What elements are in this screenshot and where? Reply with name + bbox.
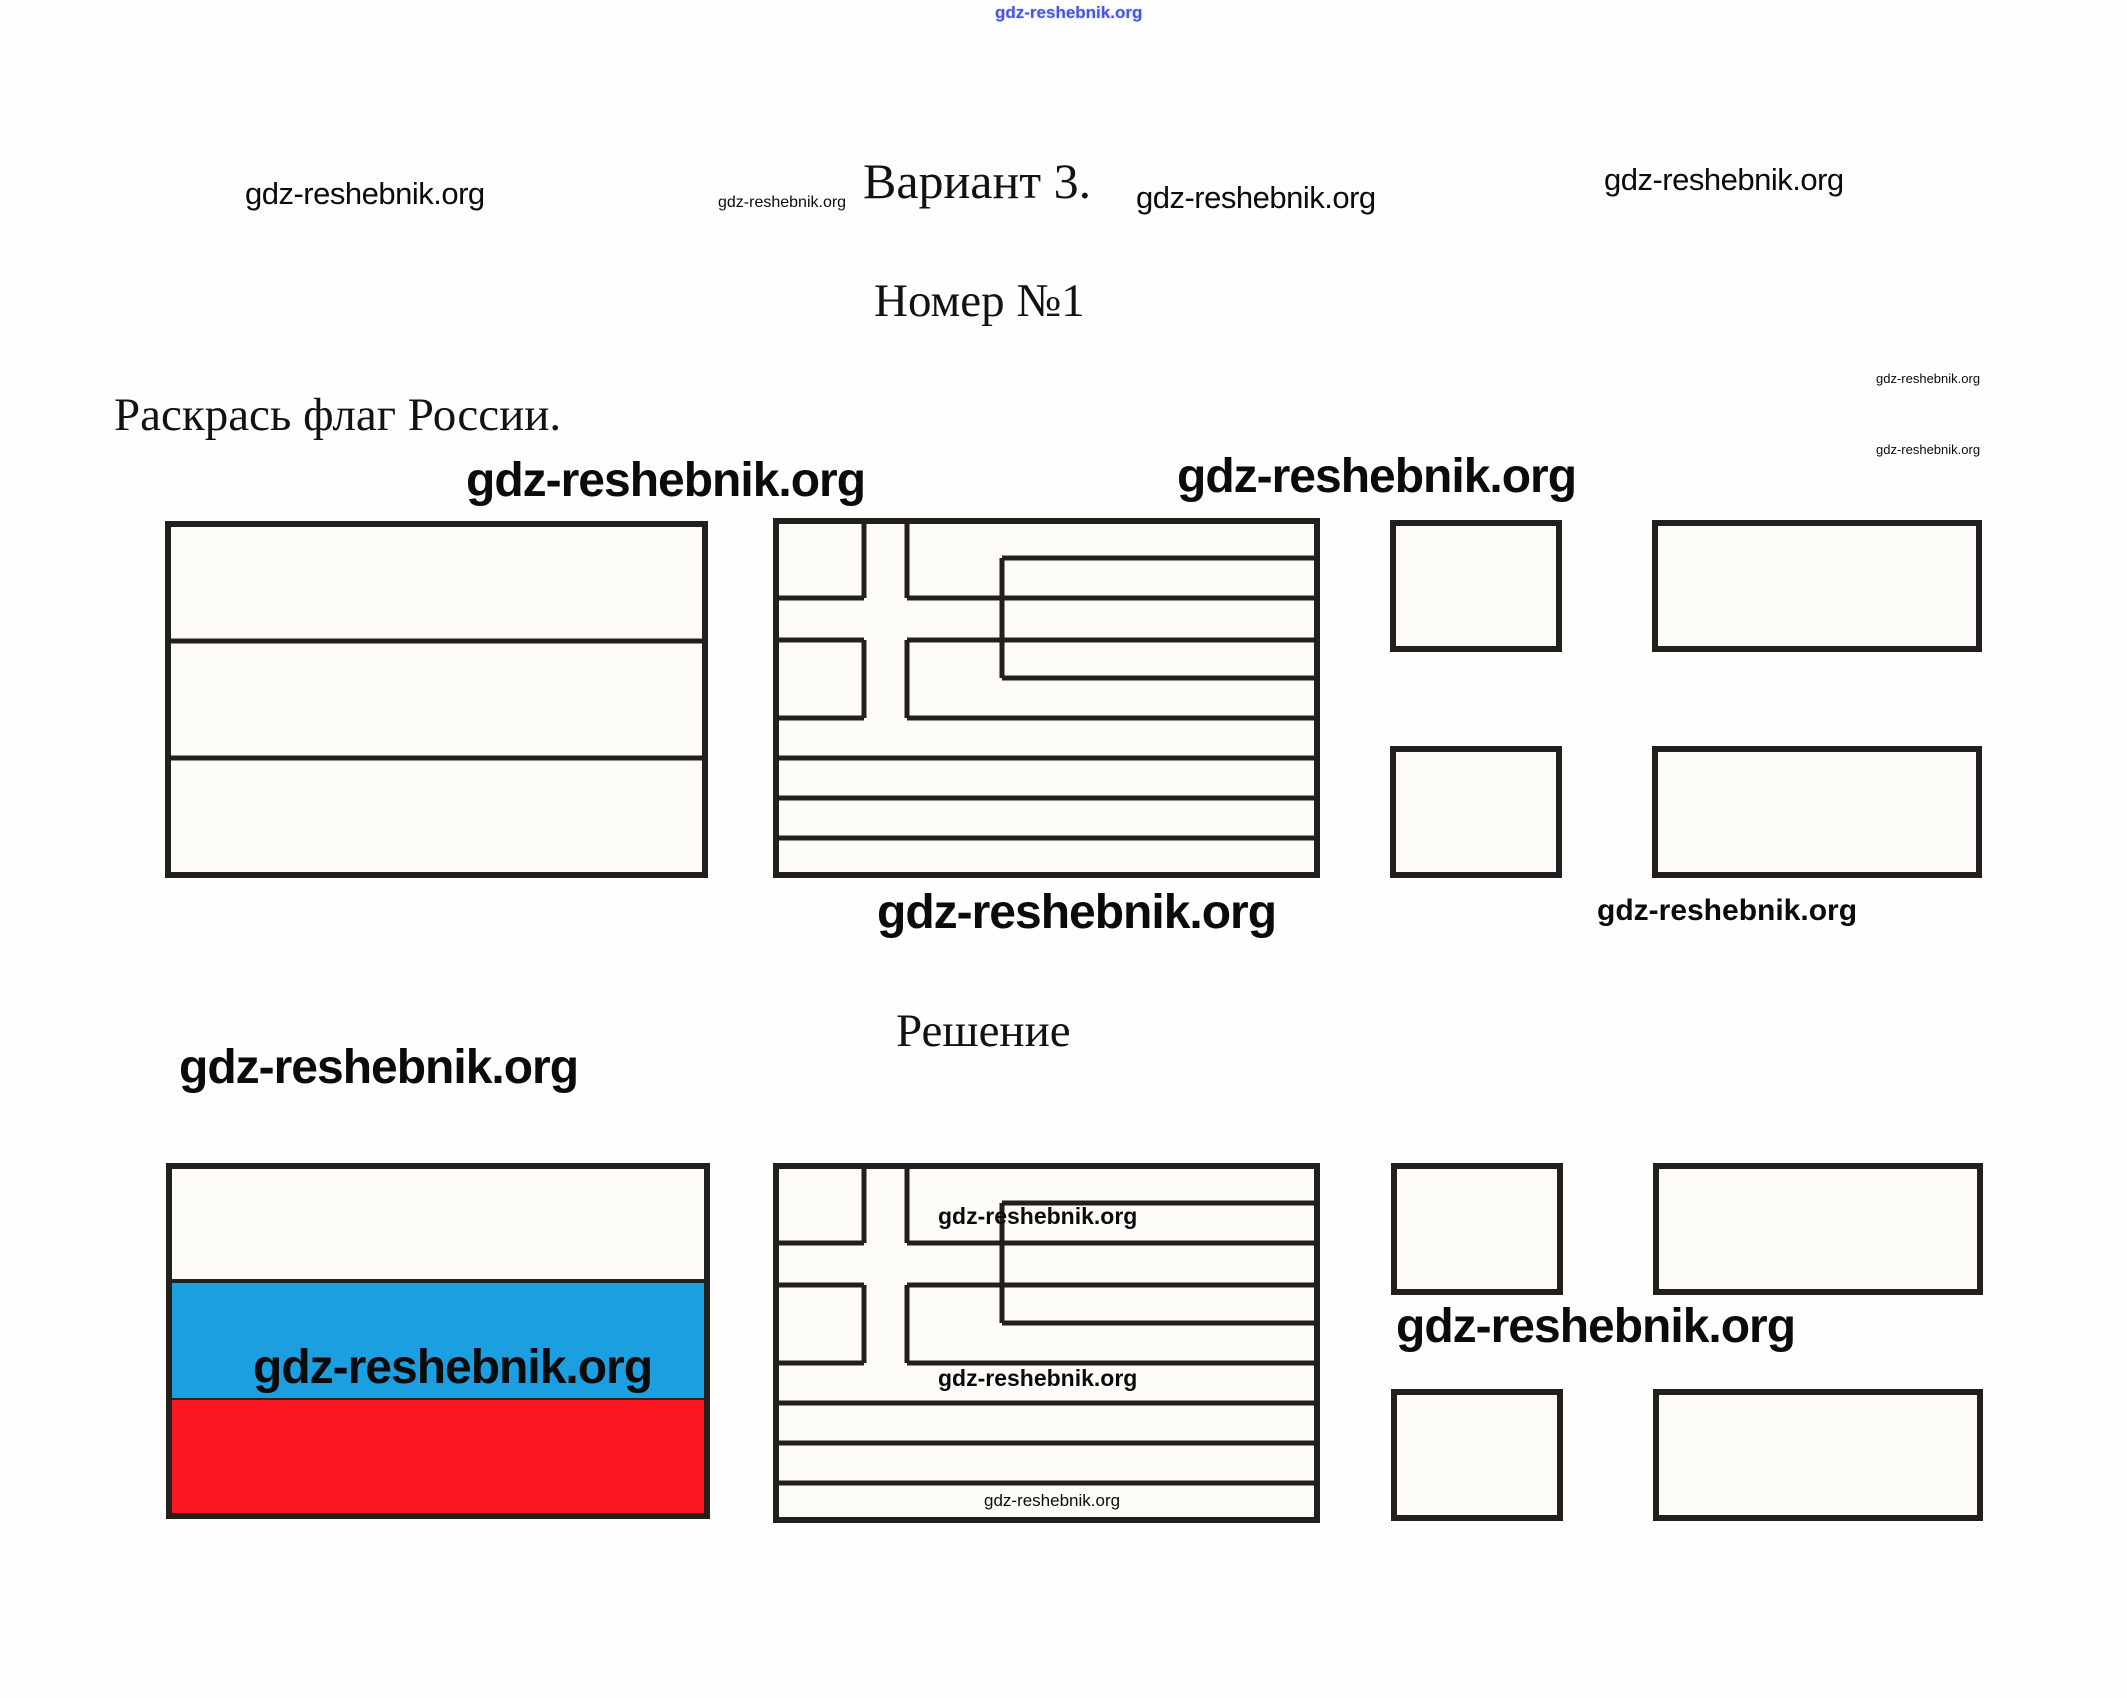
- greece-watermark-2: gdz-reshebnik.org: [938, 1365, 1137, 1392]
- russia-flag-watermark: gdz-reshebnik.org: [253, 1340, 652, 1395]
- top-watermark: gdz-reshebnik.org: [995, 3, 1142, 23]
- solution-left-watermark: gdz-reshebnik.org: [179, 1040, 578, 1095]
- solution-heading: Решение: [896, 1004, 1071, 1058]
- russia-flag-outline: [165, 521, 708, 878]
- nordic-flag-outline-drawing: [1390, 520, 1982, 878]
- russia-red-stripe: [170, 1399, 707, 1513]
- header-right-watermark: gdz-reshebnik.org: [1604, 162, 1844, 198]
- greece-flag-solution: gdz-reshebnik.org gdz-reshebnik.org gdz-…: [773, 1163, 1320, 1523]
- watermark-below-flags-big: gdz-reshebnik.org: [877, 885, 1276, 940]
- variant-title: Вариант 3.: [863, 152, 1091, 210]
- greece-flag-outline-drawing: [773, 518, 1320, 878]
- nordic-flag-watermark: gdz-reshebnik.org: [1396, 1299, 1795, 1354]
- russia-flag-outline-drawing: [165, 521, 708, 878]
- greece-flag-outline: [773, 518, 1320, 878]
- margin-watermark-bottom: gdz-reshebnik.org: [1876, 442, 1980, 457]
- greece-watermark-1: gdz-reshebnik.org: [938, 1203, 1137, 1230]
- watermark-over-flags-right: gdz-reshebnik.org: [1177, 449, 1576, 504]
- task-prompt: Раскрась флаг России.: [114, 388, 561, 442]
- header-small-watermark: gdz-reshebnik.org: [718, 194, 846, 212]
- watermark-below-flags-small: gdz-reshebnik.org: [1597, 894, 1857, 928]
- header-left-watermark: gdz-reshebnik.org: [245, 176, 485, 212]
- nordic-flag-outline: [1390, 520, 1982, 878]
- margin-watermark-top: gdz-reshebnik.org: [1876, 371, 1980, 386]
- russia-flag-colored: gdz-reshebnik.org: [166, 1163, 710, 1519]
- header-variant-watermark: gdz-reshebnik.org: [1136, 180, 1376, 216]
- watermark-over-flags-left: gdz-reshebnik.org: [466, 453, 865, 508]
- task-number-heading: Номер №1: [874, 274, 1085, 328]
- greece-watermark-3: gdz-reshebnik.org: [984, 1491, 1120, 1511]
- worksheet-page: gdz-reshebnik.org gdz-reshebnik.org gdz-…: [0, 0, 2127, 1698]
- nordic-flag-solution: gdz-reshebnik.org: [1391, 1163, 1983, 1521]
